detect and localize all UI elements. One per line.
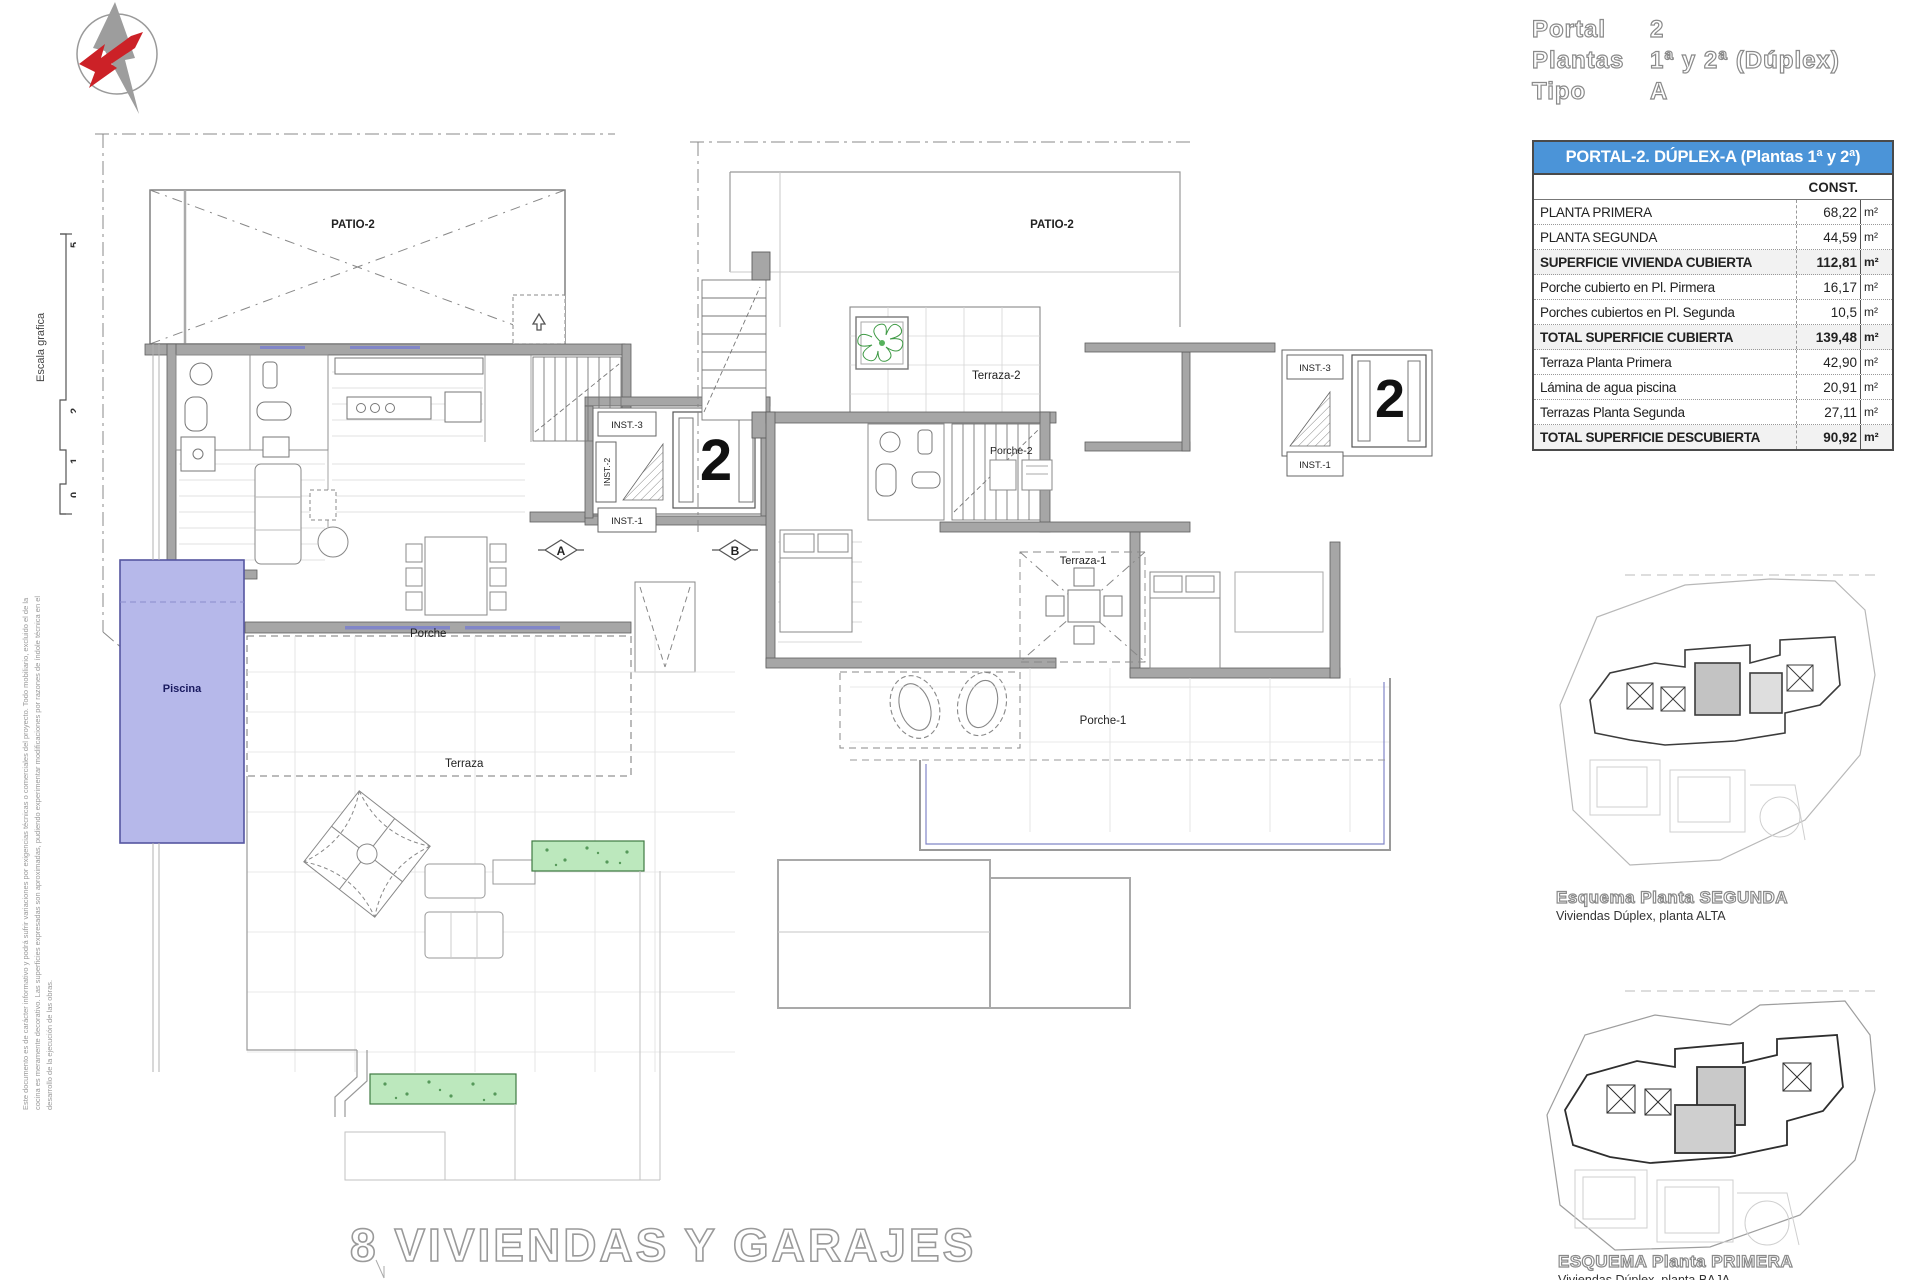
floorplan-planta-segunda: PATIO-2 Te [690,112,1450,1022]
terraza2-area: Terraza-2 [850,307,1040,422]
inst1-label: INST.-1 [611,516,643,527]
sheet-title: 8 VIVIENDAS Y GARAJES [350,1218,976,1272]
surface-table: PORTAL-2. DÚPLEX-A (Plantas 1ª y 2ª) CON… [1532,140,1894,451]
dining-set [406,537,506,615]
windows [260,346,560,630]
terraza1-label: Terraza-1 [1060,555,1106,567]
siteplan-segunda-title: Esquema Planta SEGUNDA [1556,888,1788,908]
piscina-label: Piscina [163,683,202,695]
lower-rooms [778,860,1130,1008]
bedroom-right [1150,572,1323,668]
porche2-label: Porche-2 [990,445,1033,457]
outdoor-sofa [425,860,535,958]
pool: Piscina [120,560,244,843]
inst3-label: INST.-3 [611,420,643,431]
graphic-scale: Escala grafica 5 2 1 0 [30,222,76,527]
scale-tick-2: 2 [69,408,76,414]
table-row: Terrazas Planta Segunda27,11m² [1534,400,1892,425]
portal-number: 2 [1375,369,1405,429]
scale-label: Escala grafica [35,312,47,382]
bottom-mark [370,1258,400,1280]
siteplan-primera-caption: ESQUEMA Planta PRIMERA Viviendas Dúplex,… [1558,1252,1793,1280]
terraza-label: Terraza [445,758,484,770]
terraza1-area: Terraza-1 [1020,552,1145,662]
header-label-plantas: Plantas [1532,45,1650,76]
bedroom-left [778,530,862,642]
scale-tick-5: 5 [69,242,76,248]
patio2-area: PATIO-2 [150,190,565,344]
siteplan-segunda [1535,555,1915,885]
disclaimer-line-2: decorativo. Las superficies expresadas s… [33,596,54,1110]
header-label-tipo: Tipo [1532,76,1650,107]
stairwell-left [702,252,770,438]
const-column-header: CONST. [1798,175,1861,199]
header-value-tipo: A [1650,76,1668,107]
inst3-label: INST.-3 [1299,363,1331,374]
header-label-portal: Portal [1532,14,1650,45]
marker-a: A [557,544,566,558]
loungers [882,667,1013,745]
living-sofa [255,464,348,564]
porche1-area: Porche-1 [840,668,1390,850]
siteplan-segunda-subtitle: Viviendas Dúplex, planta ALTA [1556,909,1788,923]
table-row-total: SUPERFICIE VIVIENDA CUBIERTA112,81m² [1534,250,1892,275]
porche-label: Porche [410,628,446,640]
table-row-total: TOTAL SUPERFICIE CUBIERTA139,48m² [1534,325,1892,350]
parasol [304,791,430,917]
table-row: PLANTA SEGUNDA44,59m² [1534,225,1892,250]
scale-tick-1: 1 [69,458,76,464]
table-row: Porche cubierto en Pl. Pirmera16,17m² [1534,275,1892,300]
header-value-plantas: 1ª y 2ª (Dúplex) [1650,45,1840,76]
building-footprint [1590,637,1840,745]
terraza2-label: Terraza-2 [972,370,1021,382]
table-column-header: CONST. [1534,175,1892,200]
table-row-total: TOTAL SUPERFICIE DESCUBIERTA90,92m² [1534,425,1892,449]
table-row: Lámina de agua piscina20,91m² [1534,375,1892,400]
inst2-label: INST.-2 [602,458,612,487]
siteplan-primera-subtitle: Viviendas Dúplex, planta BAJA [1558,1273,1793,1280]
table-row: Porches cubiertos en Pl. Segunda10,5m² [1534,300,1892,325]
siteplan-primera [1525,975,1920,1260]
surface-table-title: PORTAL-2. DÚPLEX-A (Plantas 1ª y 2ª) [1534,142,1892,175]
patio2-label: PATIO-2 [1030,219,1074,231]
bathroom-fixtures [868,424,944,520]
patio2-area: PATIO-2 [730,172,1180,327]
inst1-label: INST.-1 [1299,460,1331,471]
services-core: INST.-3 INST.-1 2 [1282,350,1432,476]
patio2-label: PATIO-2 [331,219,375,231]
building-footprint [1565,1035,1843,1163]
company-logo [55,2,175,117]
siteplan-segunda-caption: Esquema Planta SEGUNDA Viviendas Dúplex,… [1556,888,1788,923]
floorplan-planta-primera: PATIO-2 [95,112,785,1192]
scale-tick-0: 0 [69,492,76,498]
table-row: PLANTA PRIMERA68,22m² [1534,200,1892,225]
kitchen [335,358,483,422]
architectural-sheet: Escala grafica 5 2 1 0 Este documento es… [0,0,1920,1280]
table-row: Terraza Planta Primera42,90m² [1534,350,1892,375]
porche1-label: Porche-1 [1080,715,1127,727]
bathroom-fixtures [181,362,291,471]
legal-disclaimer: Este documento es de carácter informativ… [20,595,50,1110]
sheet-header: Portal2 Plantas1ª y 2ª (Dúplex) TipoA [1532,14,1912,107]
siteplan-primera-title: ESQUEMA Planta PRIMERA [1558,1252,1793,1272]
header-value-portal: 2 [1650,14,1664,45]
